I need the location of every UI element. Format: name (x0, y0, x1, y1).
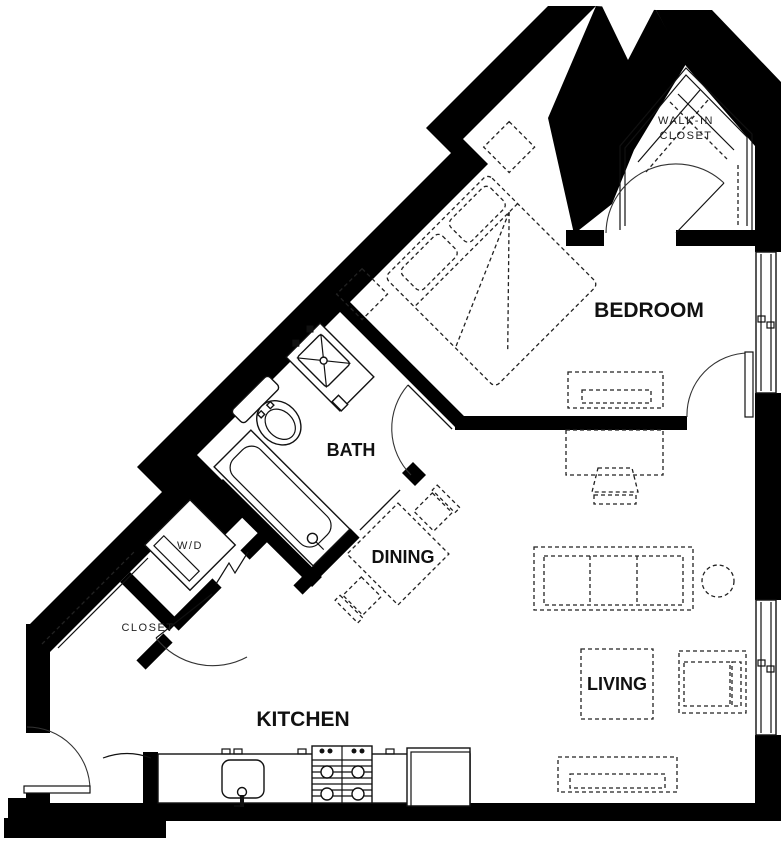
burner (352, 788, 364, 800)
faucet-handle (292, 340, 299, 347)
floor-plan: WALK-IN CLOSET BEDROOM (0, 0, 784, 844)
door-arc (27, 727, 90, 790)
desk-chair-back (594, 495, 636, 504)
dresser-inner (582, 390, 651, 403)
wall-wd-sw (125, 577, 174, 626)
nightstand (484, 122, 535, 173)
wall-entry-left (26, 624, 50, 733)
entry-door (24, 727, 90, 793)
sofa (534, 547, 693, 610)
walk-in-closet-label-line1: WALK-IN (658, 115, 714, 127)
sofa-seat (544, 556, 683, 605)
burner (352, 766, 364, 778)
bed-fold-line (440, 212, 577, 349)
wall-wic-bottom-right (676, 230, 755, 246)
bedroom-label: BEDROOM (594, 299, 704, 322)
cabinet-mark (222, 749, 230, 754)
armchair-arm (732, 662, 741, 706)
wall-bedroom-living (455, 416, 687, 430)
wd-label: W/D (177, 540, 203, 552)
bed-fold-line (414, 212, 550, 348)
shower-glass-panel (360, 490, 400, 530)
window-bedroom (756, 252, 776, 393)
cabinet-mark (386, 749, 394, 754)
chair-back (432, 485, 460, 513)
door-arc (687, 353, 749, 417)
wall-kitchen-post (143, 752, 158, 803)
closet-label: CLOSET (121, 622, 174, 634)
window-living (756, 600, 776, 735)
bedroom: BEDROOM (337, 122, 776, 420)
range-knob (352, 749, 357, 754)
wall-wic-bottom-left (566, 230, 604, 246)
armchair (679, 651, 746, 713)
fridge-outline (407, 748, 470, 806)
kitchen-label: KITCHEN (256, 708, 349, 731)
wall-bottom-step (4, 818, 166, 838)
dresser (568, 372, 663, 408)
burner (321, 788, 333, 800)
range (312, 746, 372, 803)
tv-console-inner (570, 774, 665, 788)
desk-and-chair (566, 430, 663, 504)
armchair-seat (684, 662, 730, 706)
door-leaf (745, 352, 753, 417)
kitchen-area: KITCHEN (103, 708, 470, 807)
range-knob (320, 749, 325, 754)
range-knob (360, 749, 365, 754)
bedroom-door (687, 352, 753, 417)
wall-wd-se-b (245, 531, 269, 555)
faucet-handle (306, 326, 313, 333)
glass-panel-line (360, 490, 400, 530)
dining-area: DINING (335, 485, 460, 623)
tv-console (558, 757, 677, 792)
walk-in-closet-label-line2: CLOSET (659, 130, 712, 142)
chair-back (335, 595, 363, 623)
wall-right-mid (755, 393, 781, 600)
desk-chair (592, 468, 638, 492)
door-arc (392, 385, 411, 475)
faucet-stem (240, 795, 244, 807)
window-frame (756, 600, 776, 735)
armchair-outline (679, 651, 746, 713)
refrigerator (407, 748, 470, 806)
sofa-outline (534, 547, 693, 610)
burner (321, 766, 333, 778)
door-leaf (676, 183, 724, 233)
cabinet-mark (298, 749, 306, 754)
living-area: LIVING (534, 430, 776, 792)
range-knob (328, 749, 333, 754)
side-table (702, 565, 734, 597)
dining-label: DINING (372, 547, 435, 567)
wall-bath-door-stub (402, 462, 426, 486)
wall-closet-se (141, 638, 168, 665)
bath-label: BATH (327, 440, 376, 460)
cabinet-mark (234, 749, 242, 754)
tv-console-outline (558, 757, 677, 792)
door-leaf (24, 786, 90, 793)
living-label: LIVING (587, 674, 647, 694)
